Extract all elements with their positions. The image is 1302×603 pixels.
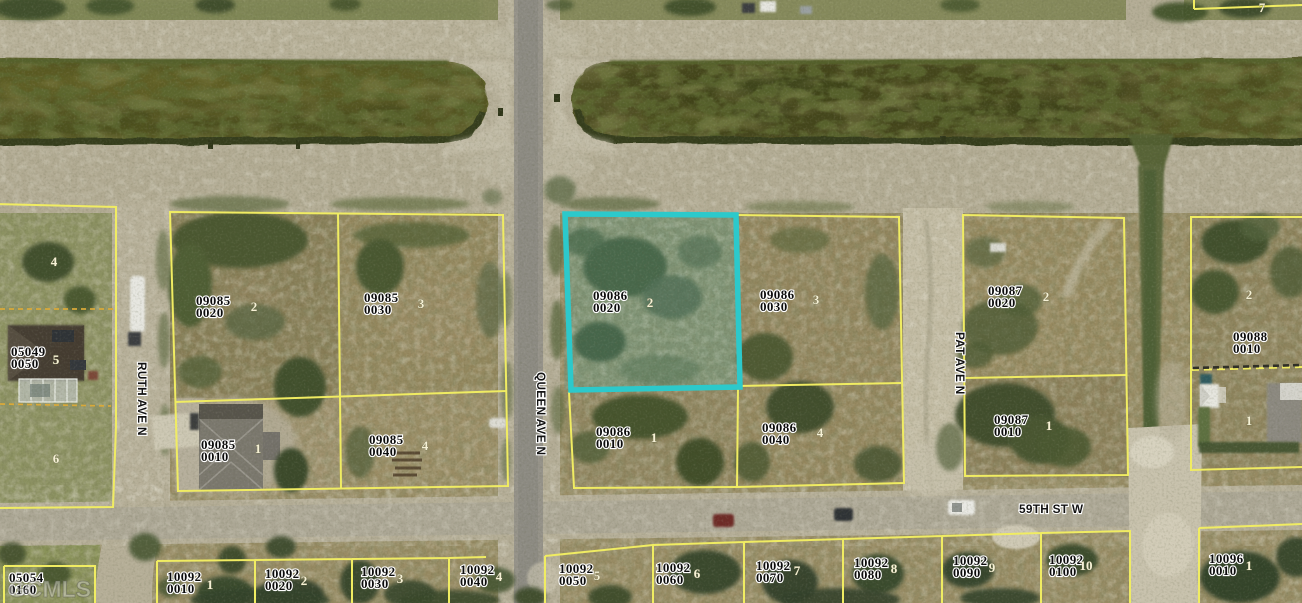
svg-text:5: 5 <box>594 568 601 583</box>
svg-text:2: 2 <box>251 299 258 314</box>
svg-text:6: 6 <box>53 451 60 466</box>
svg-text:4: 4 <box>422 438 429 453</box>
svg-text:59TH ST W: 59TH ST W <box>1019 502 1084 516</box>
svg-text:0030: 0030 <box>760 299 788 314</box>
svg-text:9: 9 <box>989 560 996 575</box>
svg-text:3: 3 <box>813 292 820 307</box>
svg-text:QUEEN AVE N: QUEEN AVE N <box>534 372 548 455</box>
svg-text:2: 2 <box>1043 289 1050 304</box>
svg-text:0060: 0060 <box>656 572 684 587</box>
svg-text:0020: 0020 <box>265 578 293 593</box>
svg-text:0010: 0010 <box>596 436 624 451</box>
svg-text:4: 4 <box>817 425 824 440</box>
svg-text:3: 3 <box>418 296 425 311</box>
svg-text:0010: 0010 <box>1209 563 1237 578</box>
svg-text:0100: 0100 <box>1049 564 1077 579</box>
svg-text:0010: 0010 <box>201 449 229 464</box>
svg-text:0020: 0020 <box>196 305 224 320</box>
svg-text:2: 2 <box>301 573 308 588</box>
svg-text:5: 5 <box>53 352 60 367</box>
svg-text:0050: 0050 <box>11 356 39 371</box>
svg-text:0050: 0050 <box>559 573 587 588</box>
svg-text:2: 2 <box>647 295 654 310</box>
svg-text:0010: 0010 <box>167 581 195 596</box>
svg-text:1: 1 <box>1246 558 1253 573</box>
svg-text:0030: 0030 <box>361 576 389 591</box>
svg-text:4: 4 <box>496 569 503 584</box>
svg-text:1: 1 <box>1046 418 1053 433</box>
svg-text:0040: 0040 <box>762 432 790 447</box>
svg-text:1: 1 <box>255 441 262 456</box>
svg-text:0040: 0040 <box>460 574 488 589</box>
svg-text:GCMLS: GCMLS <box>8 576 91 602</box>
svg-text:10: 10 <box>1080 558 1093 573</box>
svg-text:0010: 0010 <box>994 424 1022 439</box>
svg-text:0020: 0020 <box>593 300 621 315</box>
svg-text:2: 2 <box>1246 287 1253 302</box>
svg-text:1: 1 <box>651 430 658 445</box>
svg-text:7: 7 <box>794 563 801 578</box>
svg-text:0090: 0090 <box>953 565 981 580</box>
svg-text:8: 8 <box>891 561 898 576</box>
svg-text:4: 4 <box>51 254 58 269</box>
svg-text:7: 7 <box>1259 0 1266 15</box>
svg-text:6: 6 <box>694 566 701 581</box>
svg-text:RUTH AVE N: RUTH AVE N <box>135 362 149 436</box>
svg-text:3: 3 <box>397 571 404 586</box>
svg-text:0040: 0040 <box>369 444 397 459</box>
svg-text:1: 1 <box>1246 413 1253 428</box>
svg-text:0010: 0010 <box>1233 341 1261 356</box>
svg-text:1: 1 <box>207 577 214 592</box>
svg-text:0070: 0070 <box>756 570 784 585</box>
svg-text:0030: 0030 <box>364 302 392 317</box>
svg-text:0080: 0080 <box>854 567 882 582</box>
svg-text:0020: 0020 <box>988 295 1016 310</box>
svg-text:PAT AVE N: PAT AVE N <box>953 332 967 395</box>
